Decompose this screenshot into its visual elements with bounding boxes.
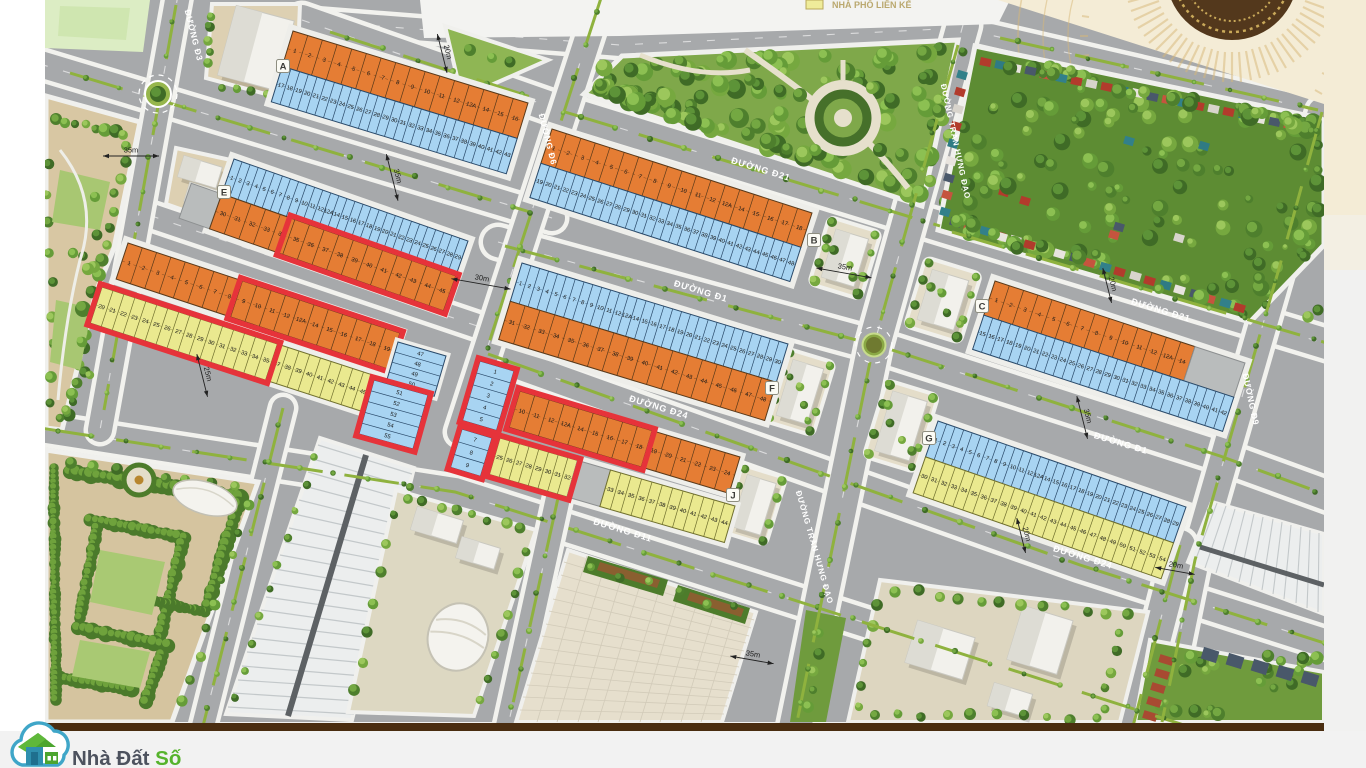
svg-text:35m: 35m (124, 146, 139, 155)
svg-text:F: F (769, 384, 775, 395)
svg-text:NHÀ PHỐ LIÊN KẾ: NHÀ PHỐ LIÊN KẾ (832, 0, 912, 10)
svg-text:G: G (925, 434, 932, 445)
svg-text:E: E (221, 188, 227, 199)
svg-text:Nhà Đất Số: Nhà Đất Số (72, 747, 181, 768)
svg-text:J: J (730, 491, 735, 502)
svg-text:B: B (811, 236, 818, 247)
svg-text:A: A (280, 62, 287, 73)
svg-text:C: C (979, 302, 986, 313)
